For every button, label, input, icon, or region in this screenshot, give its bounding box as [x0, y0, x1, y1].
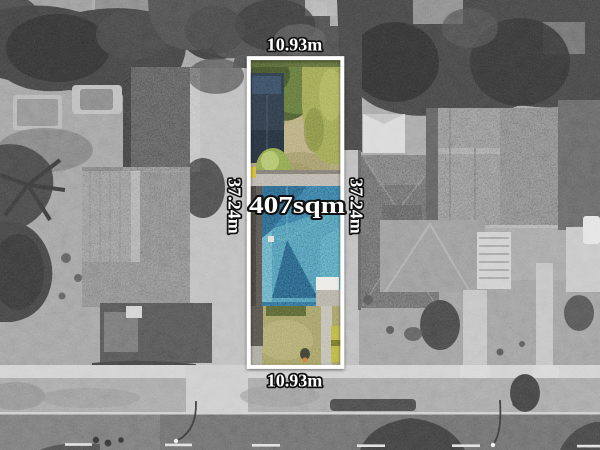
svg-text:10.93m: 10.93m	[267, 35, 323, 55]
svg-text:407sqm: 407sqm	[249, 192, 345, 219]
svg-text:37.24m: 37.24m	[225, 178, 245, 234]
svg-text:10.93m: 10.93m	[267, 371, 323, 391]
svg-text:37.24m: 37.24m	[347, 178, 367, 234]
